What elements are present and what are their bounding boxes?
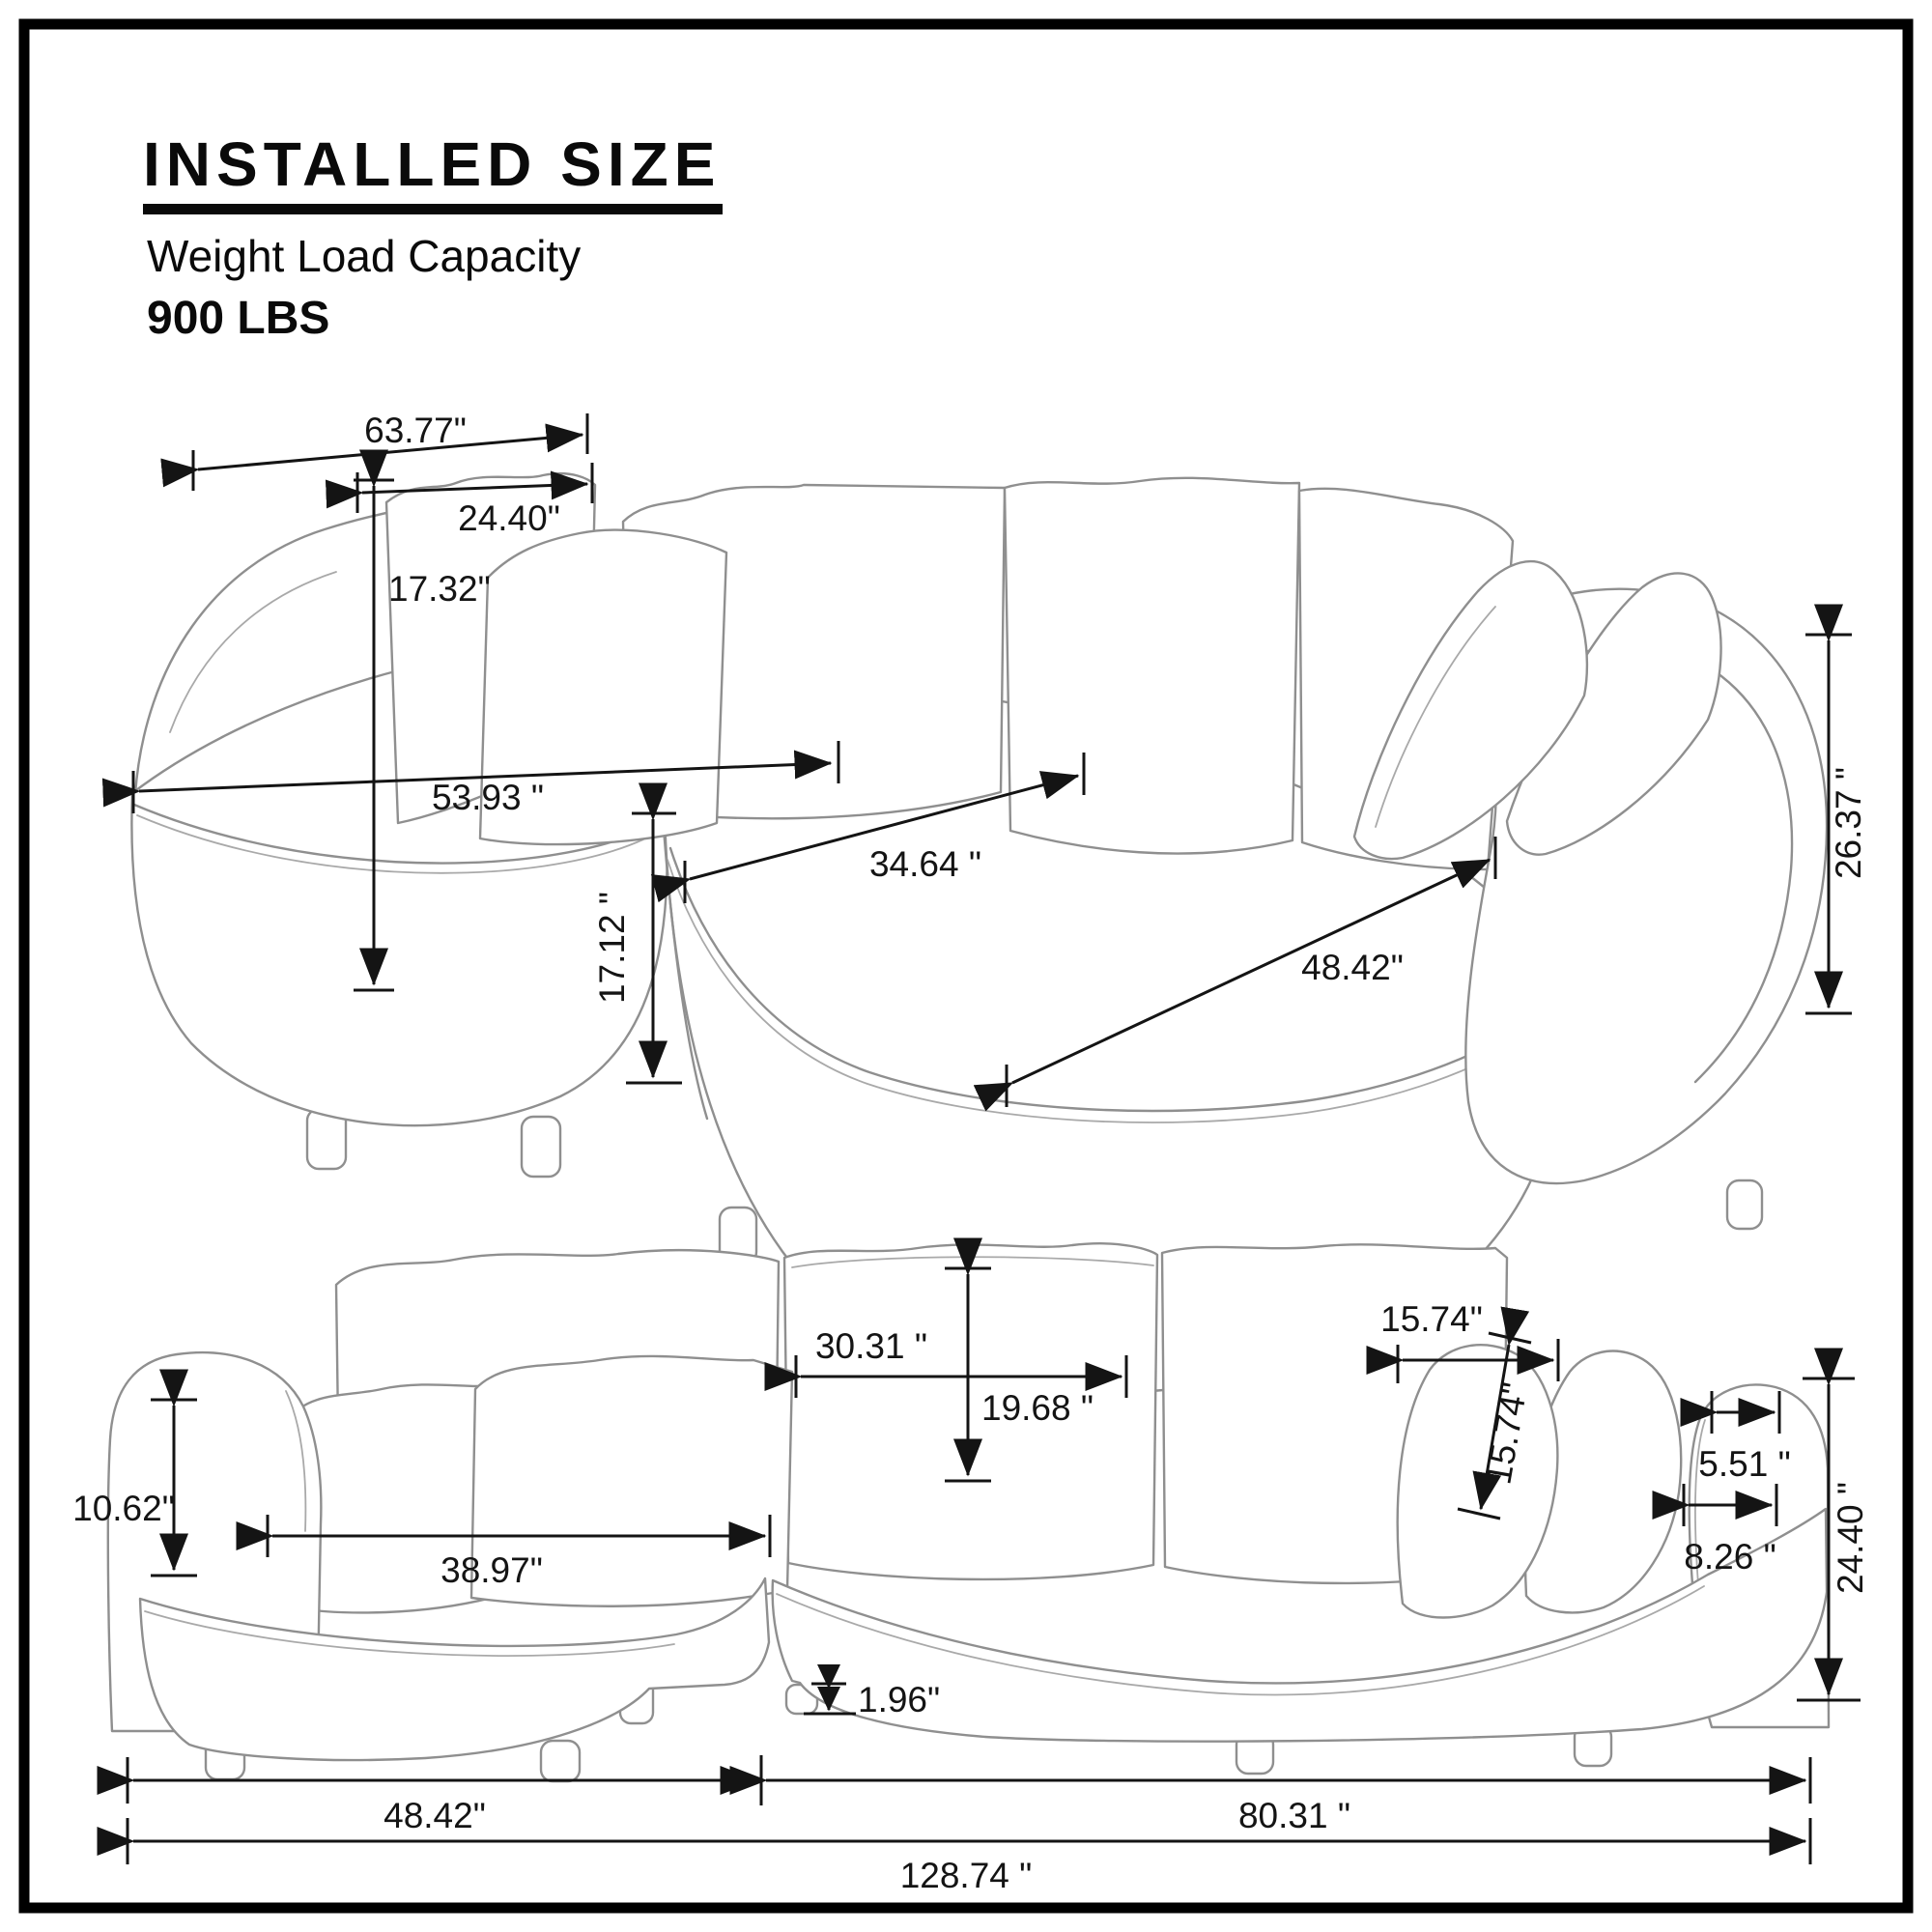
dim-label-right-seat-diag: 48.42": [1301, 948, 1404, 987]
installed-size-diagram-page: INSTALLED SIZE Weight Load Capacity 900 …: [0, 0, 1932, 1932]
dim-label-chaise-width-bottom: 48.42": [384, 1796, 486, 1835]
dim-label-back-pillow-height: 17.32": [388, 569, 491, 609]
dim-right-section-width: 80.31 ": [766, 1757, 1810, 1835]
dim-label-overall-height: 24.40 ": [1831, 1482, 1870, 1594]
front-leg: [541, 1741, 580, 1781]
front-back-pillow: [784, 1243, 1157, 1579]
top-leg: [522, 1117, 560, 1177]
dim-label-leg-height: 1.96": [858, 1680, 940, 1719]
dim-label-seat-height: 17.12 ": [592, 892, 632, 1004]
dim-label-back-pillow-width-front: 30.31 ": [815, 1326, 927, 1366]
dim-label-back-pillow-width: 24.40": [458, 498, 560, 538]
dim-label-arm-top-depth: 5.51 ": [1698, 1444, 1790, 1484]
dim-label-arm-height: 10.62": [72, 1489, 175, 1528]
dim-label-small-pillow-width: 15.74": [1380, 1299, 1483, 1339]
top-leg: [1727, 1180, 1762, 1229]
dim-label-right-section-width: 80.31 ": [1238, 1796, 1350, 1835]
diagram-svg: INSTALLED SIZE Weight Load Capacity 900 …: [0, 0, 1932, 1932]
dim-label-chaise-seat-diag: 53.93 ": [432, 778, 544, 817]
dim-total-width: 128.74 ": [128, 1818, 1810, 1895]
dim-label-chaise-seat-width: 38.97": [440, 1550, 543, 1590]
dim-label-back-height: 26.37 ": [1829, 767, 1868, 879]
header: INSTALLED SIZE Weight Load Capacity 900 …: [143, 129, 723, 344]
subtitle: Weight Load Capacity: [147, 231, 581, 281]
dim-label-mid-seat-width: 34.64 ": [869, 844, 981, 884]
dim-label-back-pillow-height-front: 19.68 ": [981, 1388, 1094, 1428]
dim-label-total-width: 128.74 ": [900, 1856, 1033, 1895]
title-underline: [143, 204, 723, 214]
top-back-pillow: [1005, 478, 1299, 854]
dim-label-arm-base-depth: 8.26 ": [1684, 1537, 1776, 1577]
dim-label-back-width: 63.77": [364, 411, 467, 450]
capacity-value: 900 LBS: [147, 293, 329, 344]
page-title: INSTALLED SIZE: [143, 129, 721, 199]
